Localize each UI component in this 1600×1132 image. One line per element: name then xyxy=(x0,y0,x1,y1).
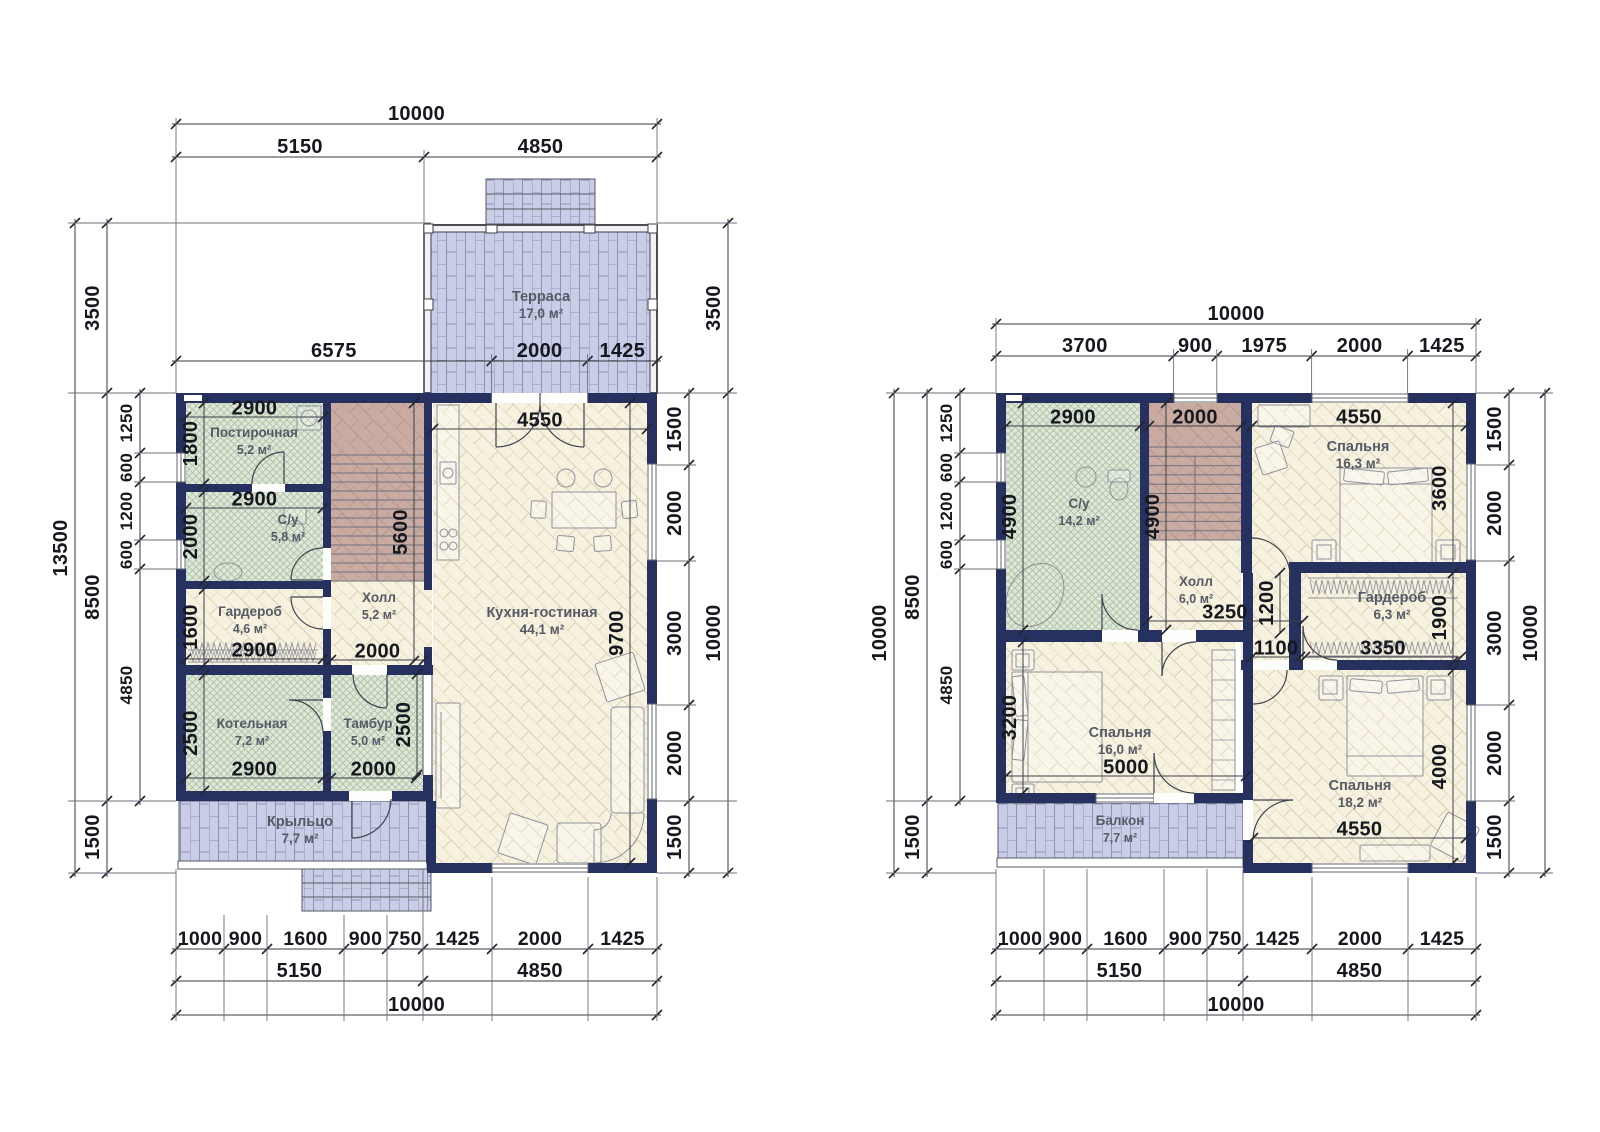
svg-text:5,0 м²: 5,0 м² xyxy=(351,734,385,748)
svg-text:Гардероб: Гардероб xyxy=(1358,590,1427,606)
svg-text:1500: 1500 xyxy=(1484,406,1506,452)
svg-text:Тамбур: Тамбур xyxy=(344,716,393,731)
svg-text:1500: 1500 xyxy=(902,814,924,860)
svg-text:18,2 м²: 18,2 м² xyxy=(1338,795,1383,810)
svg-text:3350: 3350 xyxy=(1360,638,1406,660)
svg-text:4550: 4550 xyxy=(1337,819,1383,841)
svg-text:4850: 4850 xyxy=(518,136,564,158)
svg-text:1800: 1800 xyxy=(180,421,202,467)
svg-text:4550: 4550 xyxy=(517,410,563,432)
svg-text:1200: 1200 xyxy=(1256,580,1278,626)
svg-text:5,2 м²: 5,2 м² xyxy=(362,608,396,622)
svg-text:1200: 1200 xyxy=(937,491,956,530)
svg-text:750: 750 xyxy=(1208,928,1241,950)
svg-text:8500: 8500 xyxy=(82,574,104,620)
svg-text:1425: 1425 xyxy=(435,928,480,950)
svg-text:1100: 1100 xyxy=(1254,638,1299,660)
svg-text:1250: 1250 xyxy=(937,403,956,442)
svg-text:2000: 2000 xyxy=(1484,490,1506,536)
svg-text:10000: 10000 xyxy=(388,103,445,125)
svg-text:2900: 2900 xyxy=(232,640,278,662)
svg-text:900: 900 xyxy=(229,928,262,950)
svg-text:6,0 м²: 6,0 м² xyxy=(1179,592,1213,606)
svg-text:4,6 м²: 4,6 м² xyxy=(233,622,267,636)
svg-text:1900: 1900 xyxy=(1429,595,1451,641)
svg-text:4900: 4900 xyxy=(999,494,1021,540)
svg-text:1425: 1425 xyxy=(599,340,645,362)
svg-text:16,0 м²: 16,0 м² xyxy=(1098,742,1143,757)
svg-text:4850: 4850 xyxy=(1337,960,1383,982)
svg-text:2000: 2000 xyxy=(1337,335,1383,357)
svg-text:1500: 1500 xyxy=(664,814,686,860)
svg-text:600: 600 xyxy=(117,540,136,569)
svg-text:8500: 8500 xyxy=(902,574,924,620)
svg-text:3200: 3200 xyxy=(999,695,1021,741)
svg-text:Кухня-гостиная: Кухня-гостиная xyxy=(486,605,597,621)
svg-text:2900: 2900 xyxy=(1050,407,1096,429)
svg-text:10000: 10000 xyxy=(1520,604,1542,661)
svg-text:2000: 2000 xyxy=(180,514,202,560)
svg-text:1250: 1250 xyxy=(117,403,136,442)
svg-text:2500: 2500 xyxy=(180,710,202,756)
svg-text:Гардероб: Гардероб xyxy=(218,604,282,619)
svg-text:5000: 5000 xyxy=(1103,757,1149,779)
svg-text:2000: 2000 xyxy=(664,490,686,536)
svg-text:750: 750 xyxy=(388,928,421,950)
svg-text:7,2 м²: 7,2 м² xyxy=(235,734,269,748)
svg-text:3000: 3000 xyxy=(664,610,686,656)
svg-text:1425: 1425 xyxy=(1255,928,1300,950)
svg-text:Котельная: Котельная xyxy=(217,716,288,731)
svg-text:2900: 2900 xyxy=(232,489,278,511)
svg-text:5150: 5150 xyxy=(277,136,323,158)
svg-text:13500: 13500 xyxy=(50,519,72,576)
svg-text:4900: 4900 xyxy=(1142,494,1164,540)
svg-text:Крыльцо: Крыльцо xyxy=(267,814,333,830)
svg-text:7,7 м²: 7,7 м² xyxy=(1103,831,1137,845)
svg-text:Спальня: Спальня xyxy=(1329,778,1392,794)
svg-text:2000: 2000 xyxy=(664,730,686,776)
svg-text:Балкон: Балкон xyxy=(1096,813,1145,828)
svg-text:1500: 1500 xyxy=(82,814,104,860)
svg-text:3500: 3500 xyxy=(82,285,104,331)
svg-text:2000: 2000 xyxy=(518,928,563,950)
svg-text:4850: 4850 xyxy=(117,665,136,704)
svg-text:С/у: С/у xyxy=(277,512,299,527)
svg-text:14,2 м²: 14,2 м² xyxy=(1058,514,1099,528)
svg-text:3600: 3600 xyxy=(1429,465,1451,511)
svg-text:2900: 2900 xyxy=(232,759,278,781)
svg-text:16,3 м²: 16,3 м² xyxy=(1336,456,1381,471)
svg-text:2000: 2000 xyxy=(355,641,401,663)
svg-text:4000: 4000 xyxy=(1429,744,1451,790)
svg-text:1500: 1500 xyxy=(664,406,686,452)
svg-text:10000: 10000 xyxy=(388,994,445,1016)
svg-text:1600: 1600 xyxy=(1103,928,1148,950)
svg-text:С/у: С/у xyxy=(1068,496,1090,511)
svg-text:2500: 2500 xyxy=(393,702,415,748)
svg-text:Спальня: Спальня xyxy=(1327,439,1390,455)
svg-text:2000: 2000 xyxy=(1484,730,1506,776)
svg-text:44,1 м²: 44,1 м² xyxy=(520,622,565,637)
svg-text:4850: 4850 xyxy=(937,665,956,704)
svg-text:2000: 2000 xyxy=(517,340,563,362)
svg-text:600: 600 xyxy=(117,453,136,482)
svg-text:1200: 1200 xyxy=(117,491,136,530)
svg-text:900: 900 xyxy=(1169,928,1202,950)
svg-text:1000: 1000 xyxy=(998,928,1043,950)
svg-text:1500: 1500 xyxy=(1484,814,1506,860)
svg-text:5150: 5150 xyxy=(277,960,323,982)
svg-text:1975: 1975 xyxy=(1241,335,1287,357)
svg-text:10000: 10000 xyxy=(703,604,725,661)
svg-text:2000: 2000 xyxy=(1338,928,1383,950)
svg-text:900: 900 xyxy=(1178,335,1212,357)
svg-text:3500: 3500 xyxy=(703,285,725,331)
svg-text:9700: 9700 xyxy=(606,610,628,656)
svg-text:900: 900 xyxy=(349,928,382,950)
svg-text:1425: 1425 xyxy=(1420,928,1465,950)
svg-text:10000: 10000 xyxy=(1207,994,1264,1016)
svg-text:1600: 1600 xyxy=(180,604,202,650)
svg-text:5,8 м²: 5,8 м² xyxy=(271,530,305,544)
svg-text:4850: 4850 xyxy=(517,960,563,982)
svg-text:7,7 м²: 7,7 м² xyxy=(282,831,320,846)
svg-text:6,3 м²: 6,3 м² xyxy=(1374,607,1412,622)
svg-text:Холл: Холл xyxy=(1179,574,1213,589)
svg-text:2000: 2000 xyxy=(351,759,397,781)
svg-text:900: 900 xyxy=(1049,928,1082,950)
svg-text:1600: 1600 xyxy=(283,928,328,950)
svg-text:3700: 3700 xyxy=(1062,335,1108,357)
svg-text:600: 600 xyxy=(937,540,956,569)
svg-text:4550: 4550 xyxy=(1336,407,1382,429)
svg-text:6575: 6575 xyxy=(311,340,357,362)
svg-text:Холл: Холл xyxy=(362,590,396,605)
svg-text:1425: 1425 xyxy=(600,928,645,950)
svg-text:5,2 м²: 5,2 м² xyxy=(237,443,271,457)
svg-text:2000: 2000 xyxy=(1172,407,1218,429)
svg-text:10000: 10000 xyxy=(1207,303,1264,325)
svg-text:3000: 3000 xyxy=(1484,610,1506,656)
svg-text:17,0 м²: 17,0 м² xyxy=(519,306,564,321)
svg-text:Терраса: Терраса xyxy=(512,289,571,305)
svg-text:2900: 2900 xyxy=(232,398,278,420)
svg-text:5150: 5150 xyxy=(1097,960,1143,982)
svg-text:Постирочная: Постирочная xyxy=(210,425,298,440)
svg-text:Спальня: Спальня xyxy=(1089,725,1152,741)
svg-text:10000: 10000 xyxy=(869,604,891,661)
svg-text:1425: 1425 xyxy=(1419,335,1465,357)
svg-text:600: 600 xyxy=(937,453,956,482)
svg-text:5600: 5600 xyxy=(390,509,412,555)
svg-text:1000: 1000 xyxy=(178,928,223,950)
